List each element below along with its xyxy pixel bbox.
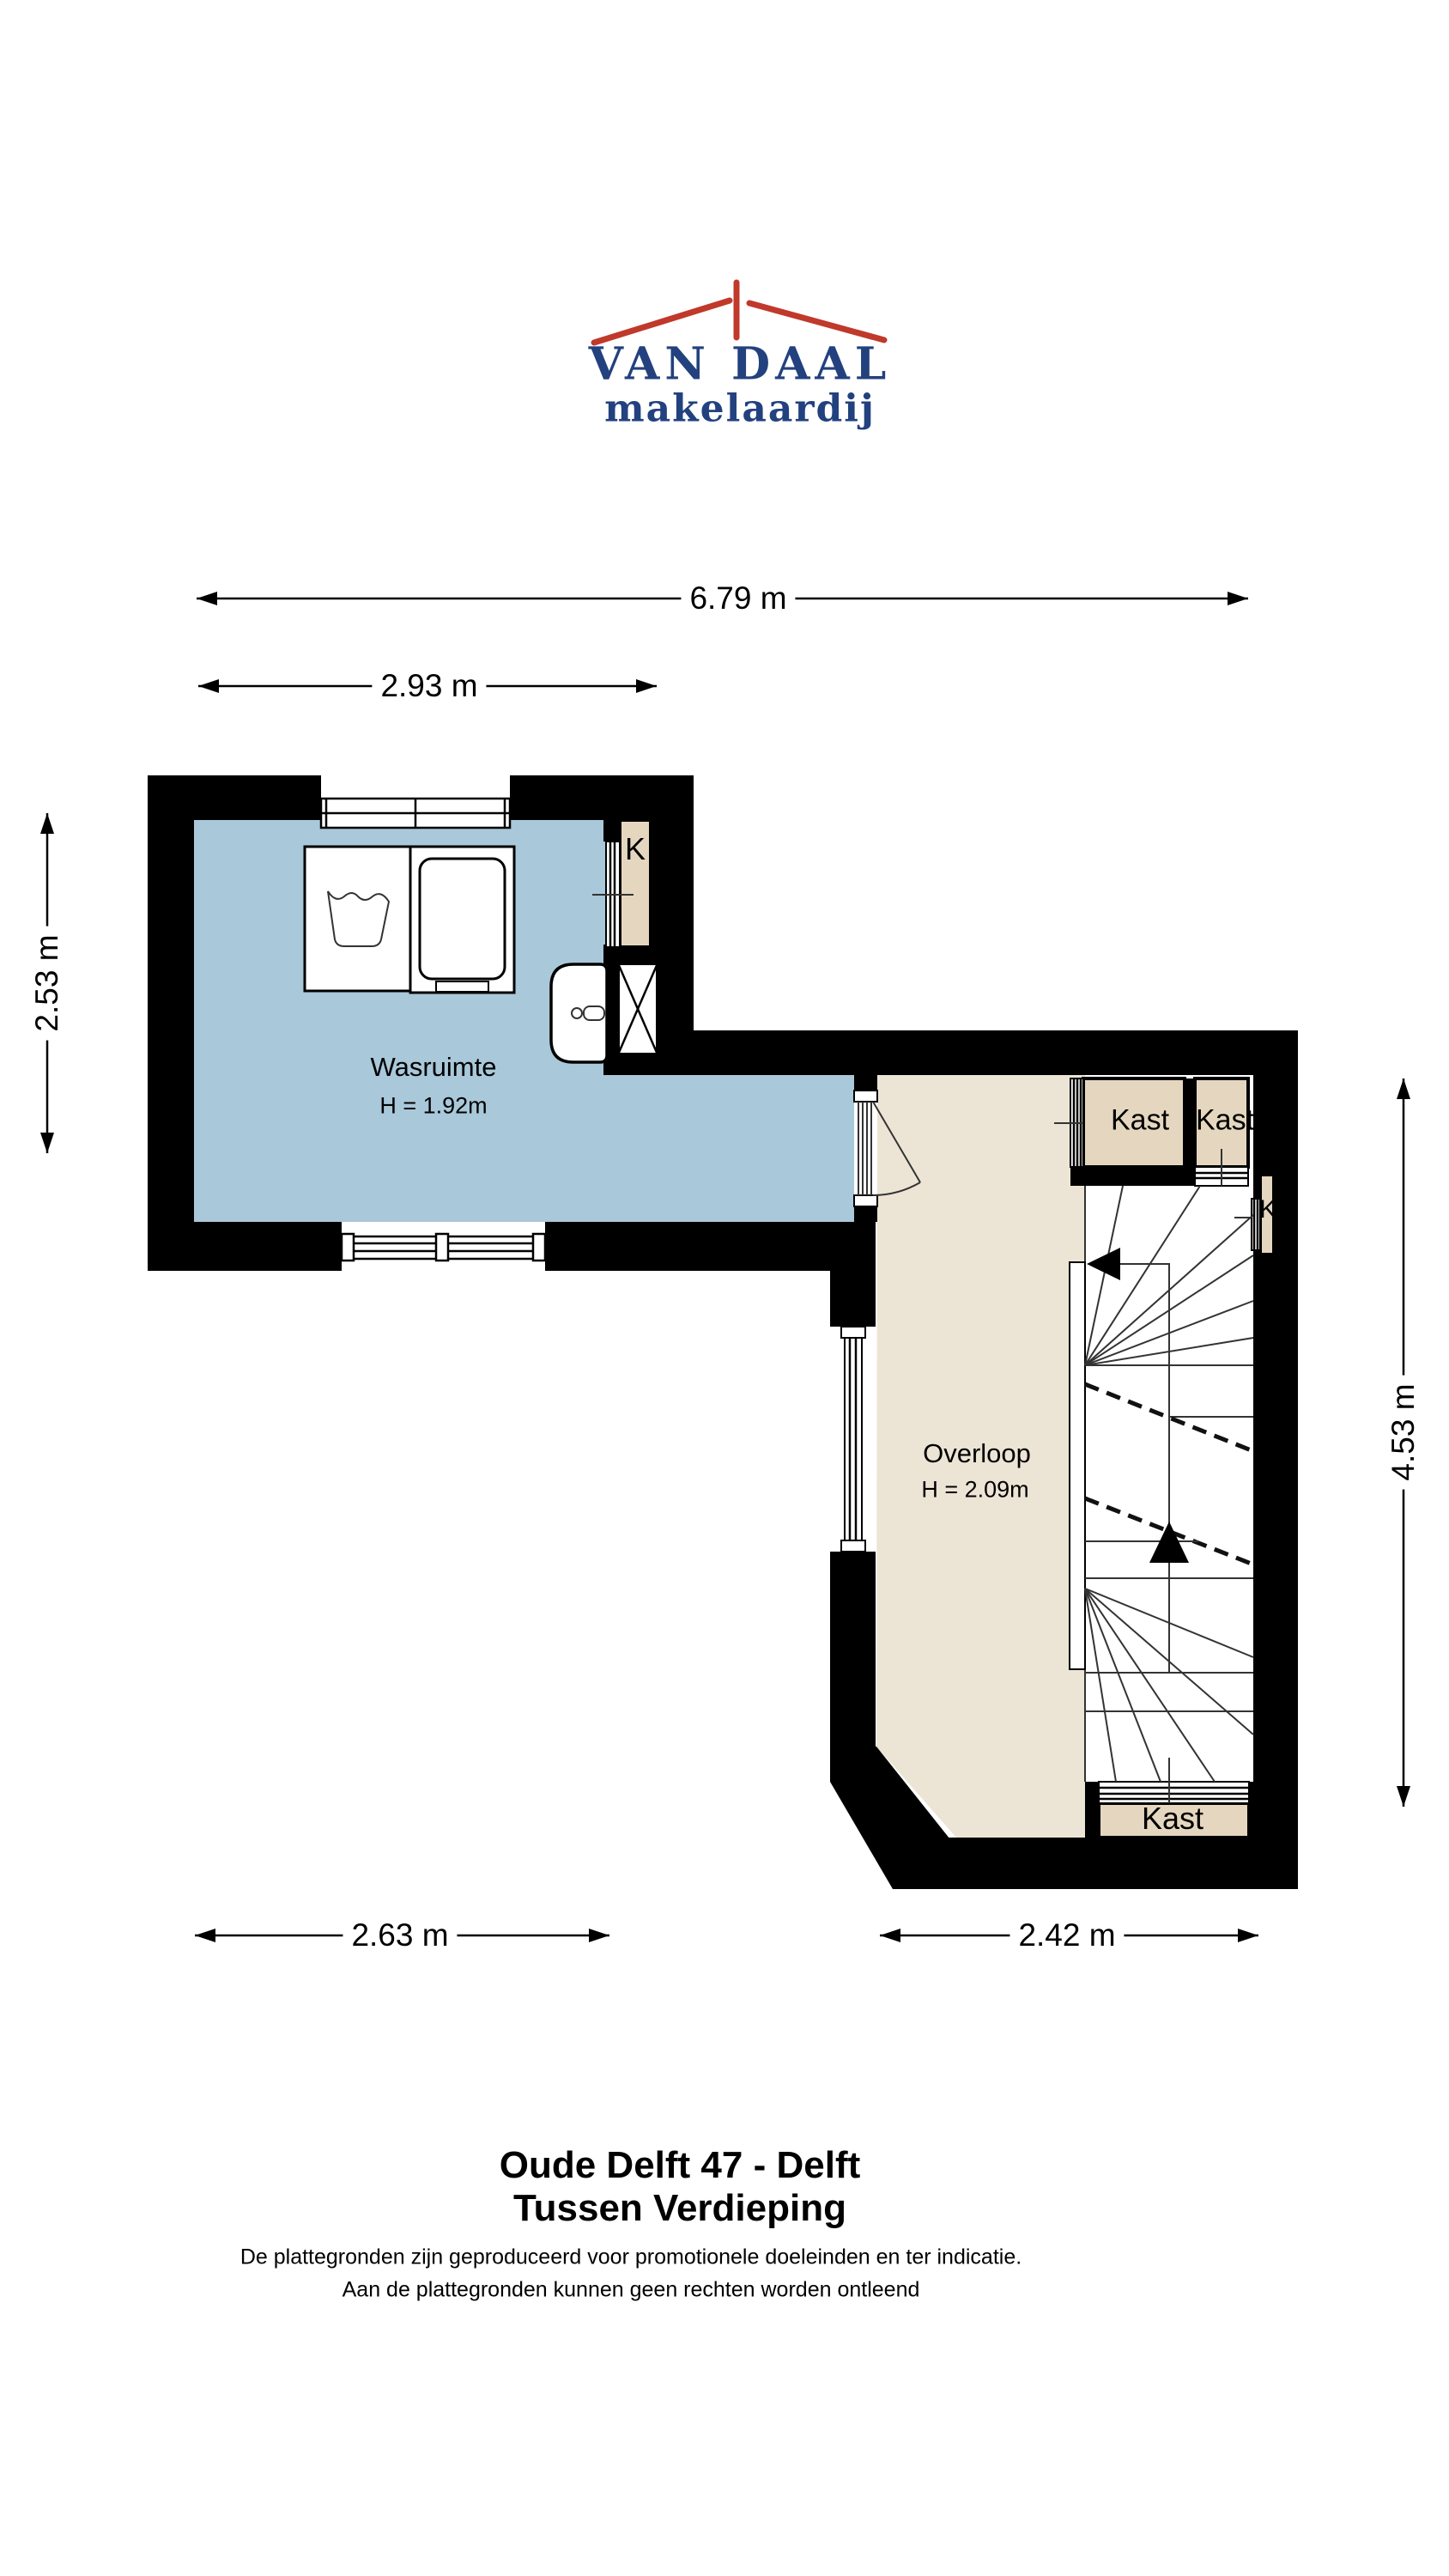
- washing-machine-icon: [410, 847, 514, 993]
- footer-disclaimer-2: Aan de plattegronden kunnen geen rechten…: [343, 2278, 920, 2303]
- room-label-wasruimte: Wasruimte: [371, 1052, 497, 1083]
- room-height-wasruimte: H = 1.92m: [379, 1093, 487, 1120]
- dimension-top-total: 6.79 m: [681, 580, 795, 617]
- closet-label-kast-bottom: Kast: [1142, 1801, 1203, 1837]
- dimension-right: 4.53 m: [1385, 1375, 1422, 1489]
- laundry-floor: [194, 820, 854, 1222]
- logo-title: VAN DAAL: [589, 338, 892, 391]
- roof-icon: [594, 283, 884, 343]
- closet-label-k-top: K: [625, 831, 646, 867]
- floorplan-page: VAN DAAL makelaardij 6.79 m 2.93 m 2.53 …: [0, 0, 1449, 2576]
- dimension-bottom-left: 2.63 m: [343, 1917, 457, 1953]
- window-bottom: [342, 1222, 545, 1271]
- window-left: [830, 1327, 876, 1552]
- dimension-top-left: 2.93 m: [372, 668, 486, 704]
- sink-icon: [551, 964, 607, 1062]
- footer-address: Oude Delft 47 - Delft: [500, 2144, 861, 2187]
- room-label-overloop: Overloop: [923, 1438, 1031, 1469]
- washbasin-icon: [305, 847, 410, 991]
- dimension-left: 2.53 m: [29, 926, 65, 1040]
- window-top: [321, 775, 510, 828]
- footer-floor: Tussen Verdieping: [513, 2187, 846, 2230]
- logo-subtitle: makelaardij: [604, 387, 876, 431]
- footer-disclaimer-1: De plattegronden zijn geproduceerd voor …: [240, 2245, 1022, 2270]
- dimension-bottom-right: 2.42 m: [1009, 1917, 1124, 1953]
- closet-label-kast-2: Kast: [1196, 1104, 1254, 1138]
- closet-label-kast-1: Kast: [1111, 1104, 1169, 1138]
- room-height-overloop: H = 2.09m: [921, 1477, 1028, 1504]
- shaft-icon: [618, 963, 658, 1054]
- closet-label-k-right: K: [1259, 1195, 1276, 1224]
